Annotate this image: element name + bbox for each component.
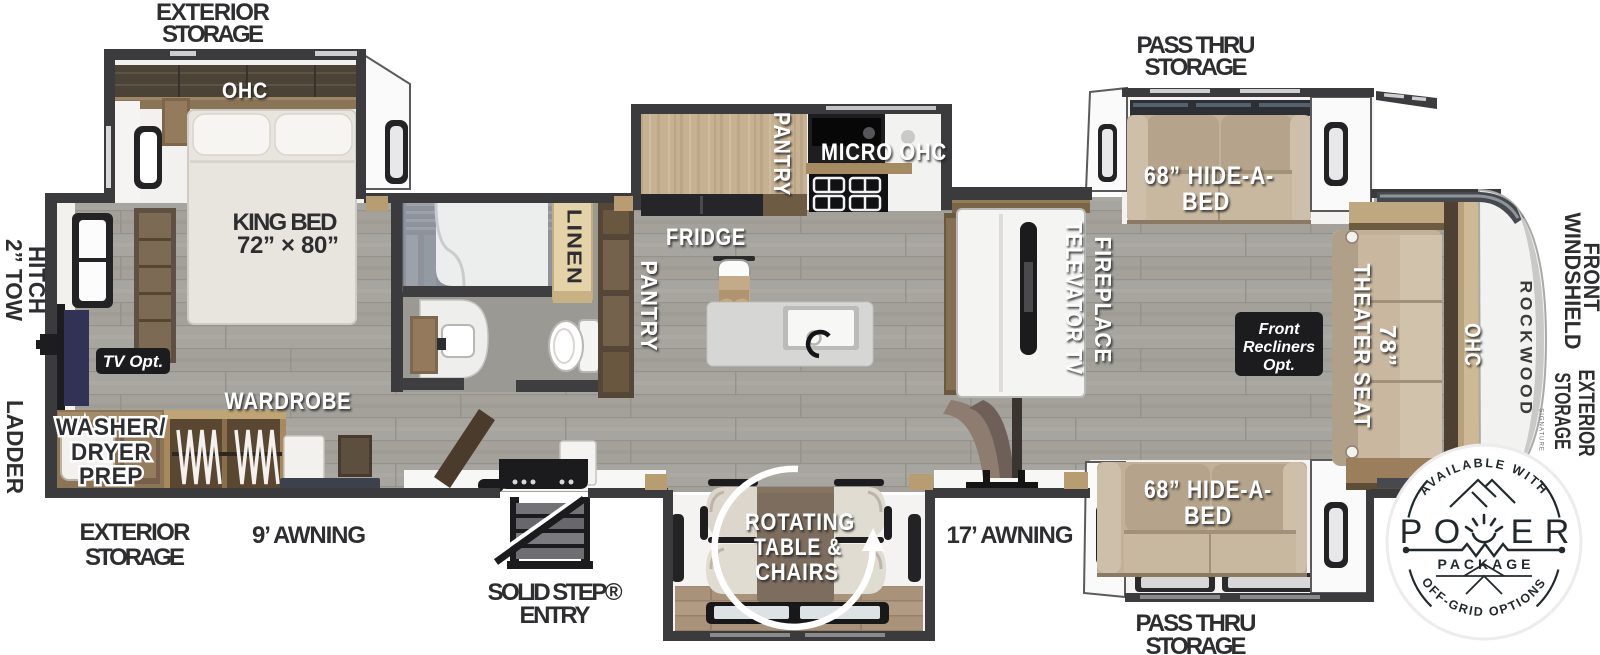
svg-text:E: E xyxy=(1511,513,1534,551)
svg-text:Recliners: Recliners xyxy=(1243,339,1315,356)
svg-text:MICRO OHC: MICRO OHC xyxy=(821,139,947,166)
svg-text:DRYER: DRYER xyxy=(71,439,151,466)
svg-text:ROTATING: ROTATING xyxy=(745,509,855,536)
svg-text:PACKAGE: PACKAGE xyxy=(1438,556,1535,572)
svg-text:9’ AWNING: 9’ AWNING xyxy=(252,522,366,549)
svg-text:FRONT: FRONT xyxy=(1579,243,1600,313)
svg-text:TV Opt.: TV Opt. xyxy=(103,352,163,371)
svg-text:PANTRY: PANTRY xyxy=(636,261,662,352)
svg-text:SIGNATURE: SIGNATURE xyxy=(1537,408,1543,452)
svg-text:R: R xyxy=(1545,513,1570,551)
svg-text:68” HIDE-A-: 68” HIDE-A- xyxy=(1144,476,1272,504)
svg-text:LINEN: LINEN xyxy=(563,209,585,285)
svg-text:TELEVATOR TV: TELEVATOR TV xyxy=(1061,221,1087,375)
svg-text:HITCH: HITCH xyxy=(24,246,50,314)
svg-text:Front: Front xyxy=(1259,321,1301,338)
svg-text:STORAGE: STORAGE xyxy=(1145,54,1248,81)
svg-text:ENTRY: ENTRY xyxy=(520,602,591,629)
svg-text:THEATER SEAT: THEATER SEAT xyxy=(1349,264,1375,429)
svg-text:PREP: PREP xyxy=(79,463,143,490)
svg-text:P: P xyxy=(1400,513,1423,551)
svg-text:O: O xyxy=(1434,513,1460,551)
svg-text:BED: BED xyxy=(1184,502,1232,530)
svg-text:Opt.: Opt. xyxy=(1263,357,1295,374)
svg-text:2” TOW: 2” TOW xyxy=(1,239,27,321)
svg-text:EXTERIOR: EXTERIOR xyxy=(80,519,191,546)
svg-text:LADDER: LADDER xyxy=(2,400,28,494)
svg-text:STORAGE: STORAGE xyxy=(1146,633,1247,655)
svg-text:ROCKWOOD: ROCKWOOD xyxy=(1517,281,1536,418)
svg-text:WASHER/: WASHER/ xyxy=(56,414,166,441)
svg-text:OHC: OHC xyxy=(1460,323,1485,367)
svg-text:78”: 78” xyxy=(1375,325,1401,367)
svg-text:PANTRY: PANTRY xyxy=(769,112,795,196)
svg-text:STORAGE: STORAGE xyxy=(1550,373,1575,450)
svg-text:BED: BED xyxy=(1182,188,1230,216)
svg-text:WARDROBE: WARDROBE xyxy=(225,388,352,415)
svg-text:CHAIRS: CHAIRS xyxy=(755,559,839,586)
svg-text:STORAGE: STORAGE xyxy=(85,544,185,571)
svg-text:FRIDGE: FRIDGE xyxy=(666,224,746,251)
svg-text:17’ AWNING: 17’ AWNING xyxy=(947,522,1074,549)
svg-text:OHC: OHC xyxy=(222,78,268,103)
svg-text:FIREPLACE: FIREPLACE xyxy=(1090,237,1116,364)
svg-text:EXTERIOR: EXTERIOR xyxy=(1574,370,1599,457)
svg-text:68” HIDE-A-: 68” HIDE-A- xyxy=(1144,162,1274,190)
svg-text:72” × 80”: 72” × 80” xyxy=(237,232,339,259)
svg-text:STORAGE: STORAGE xyxy=(162,21,264,48)
svg-text:TABLE &: TABLE & xyxy=(754,534,842,561)
